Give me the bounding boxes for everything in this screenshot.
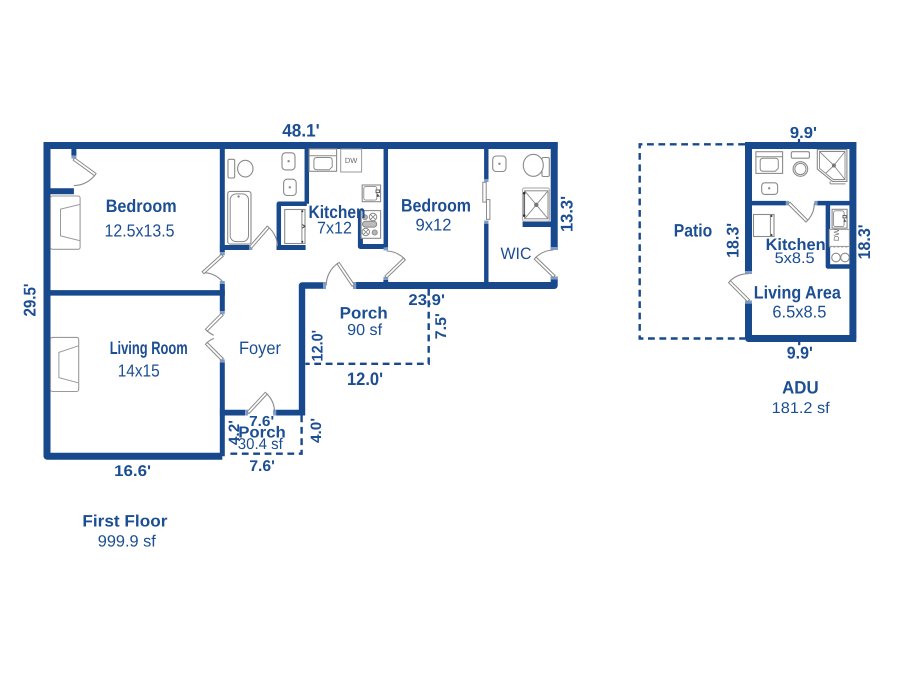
svg-text:Porch: Porch (340, 304, 388, 322)
svg-text:WIC: WIC (501, 245, 532, 263)
svg-text:DW: DW (832, 228, 841, 241)
svg-text:90 sf: 90 sf (347, 322, 383, 339)
svg-text:First Floor: First Floor (82, 513, 168, 531)
svg-text:6.5x8.5: 6.5x8.5 (772, 303, 826, 322)
svg-text:Foyer: Foyer (239, 338, 281, 358)
svg-text:9x12: 9x12 (416, 216, 452, 235)
svg-text:Patio: Patio (674, 221, 713, 241)
svg-text:16.6': 16.6' (114, 463, 151, 480)
svg-text:9.9': 9.9' (790, 125, 817, 142)
svg-text:Living Room: Living Room (110, 338, 188, 358)
svg-text:12.0': 12.0' (347, 369, 383, 389)
svg-text:Bedroom: Bedroom (401, 196, 471, 216)
svg-text:Bedroom: Bedroom (106, 196, 177, 216)
svg-text:14x15: 14x15 (118, 361, 160, 381)
svg-text:23.9': 23.9' (408, 292, 445, 309)
svg-text:12.5x13.5: 12.5x13.5 (105, 221, 175, 241)
svg-text:48.1': 48.1' (282, 121, 320, 141)
svg-text:7.6': 7.6' (249, 458, 275, 475)
svg-text:13.3': 13.3' (558, 196, 577, 232)
svg-text:ADU: ADU (782, 378, 819, 398)
svg-text:7x12: 7x12 (317, 219, 352, 238)
svg-text:4.2': 4.2' (226, 420, 243, 445)
svg-text:5x8.5: 5x8.5 (775, 250, 815, 267)
svg-text:DW: DW (345, 156, 358, 165)
svg-text:999.9 sf: 999.9 sf (98, 533, 156, 551)
svg-text:Living Area: Living Area (754, 283, 842, 303)
svg-text:30.4 sf: 30.4 sf (238, 436, 284, 453)
svg-text:29.5': 29.5' (21, 284, 40, 317)
svg-text:12.0': 12.0' (310, 330, 327, 362)
svg-text:18.3': 18.3' (855, 224, 874, 259)
svg-text:18.3': 18.3' (724, 223, 743, 258)
svg-text:181.2 sf: 181.2 sf (772, 400, 831, 417)
svg-text:7.5': 7.5' (433, 313, 450, 339)
svg-text:9.9': 9.9' (787, 344, 813, 363)
svg-text:4.0': 4.0' (308, 418, 325, 443)
